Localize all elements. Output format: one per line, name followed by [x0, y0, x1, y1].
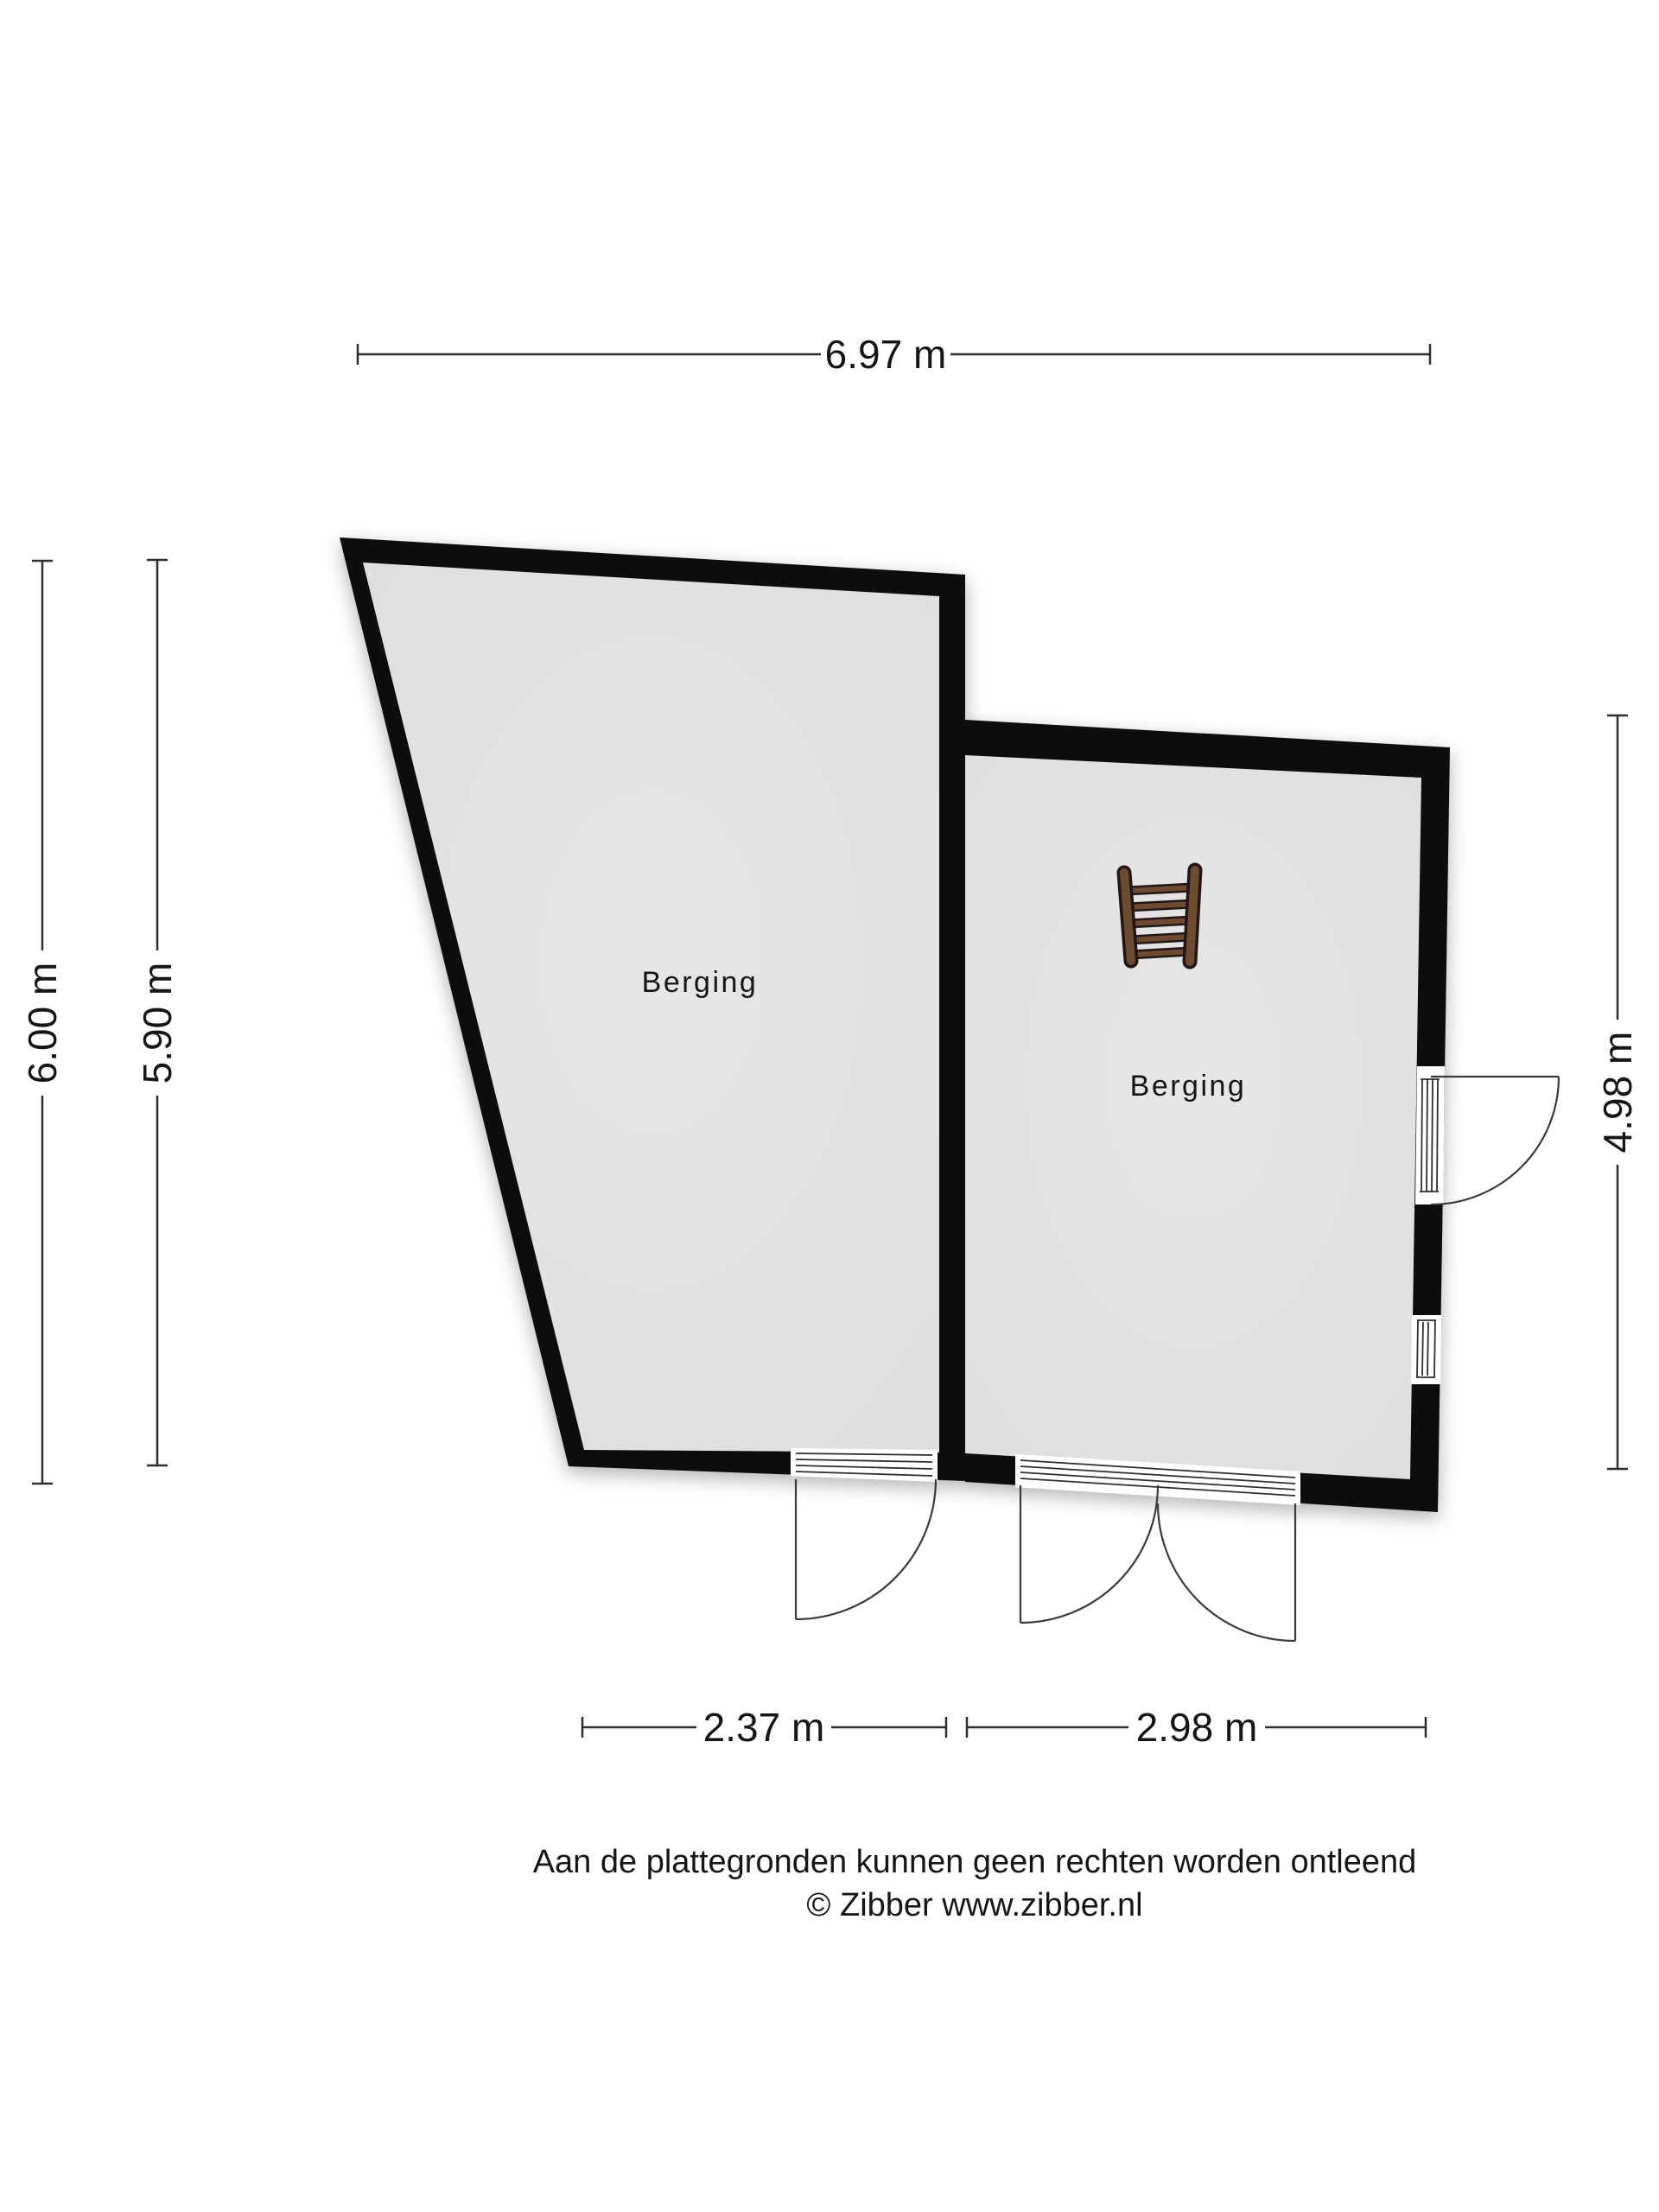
- dimension-left-outer-label: 6.00 m: [20, 963, 65, 1084]
- right-door-swing: [1431, 1077, 1559, 1205]
- dimension-left-inner-label: 5.90 m: [135, 963, 180, 1084]
- dimension-left-outer: 6.00 m: [20, 561, 65, 1484]
- dimension-right: 4.98 m: [1595, 715, 1640, 1469]
- dimension-top: 6.97 m: [358, 332, 1430, 377]
- dimension-bottom-left: 2.37 m: [582, 1705, 946, 1750]
- dimension-right-label: 4.98 m: [1595, 1032, 1640, 1154]
- dimension-left-inner: 5.90 m: [135, 560, 180, 1465]
- floorplan-page: Berging Berging 6.97 m 6.00 m 5.90 m 4.9…: [0, 0, 1659, 2212]
- right-wall-door-opening: [1415, 1066, 1445, 1205]
- left-door-swing: [796, 1479, 936, 1619]
- dimension-bottom-left-label: 2.37 m: [703, 1705, 825, 1750]
- double-door-right-swing: [1158, 1503, 1295, 1641]
- building: [340, 537, 1450, 1512]
- footer-copyright: © Zibber www.zibber.nl: [806, 1887, 1142, 1923]
- room-label-berging-left: Berging: [642, 966, 759, 999]
- left-room-floor: [363, 563, 939, 1452]
- left-room-door-opening: [791, 1448, 938, 1482]
- dimension-bottom-right: 2.98 m: [967, 1705, 1426, 1750]
- double-door-left-swing: [1020, 1485, 1158, 1623]
- dimension-top-label: 6.97 m: [825, 332, 947, 377]
- room-label-berging-right: Berging: [1130, 1070, 1247, 1103]
- window-icon: [1411, 1315, 1441, 1384]
- floorplan-canvas: Berging Berging 6.97 m 6.00 m 5.90 m 4.9…: [0, 0, 1659, 2212]
- footer-disclaimer: Aan de plattegronden kunnen geen rechten…: [533, 1844, 1417, 1880]
- dimension-bottom-right-label: 2.98 m: [1136, 1705, 1258, 1750]
